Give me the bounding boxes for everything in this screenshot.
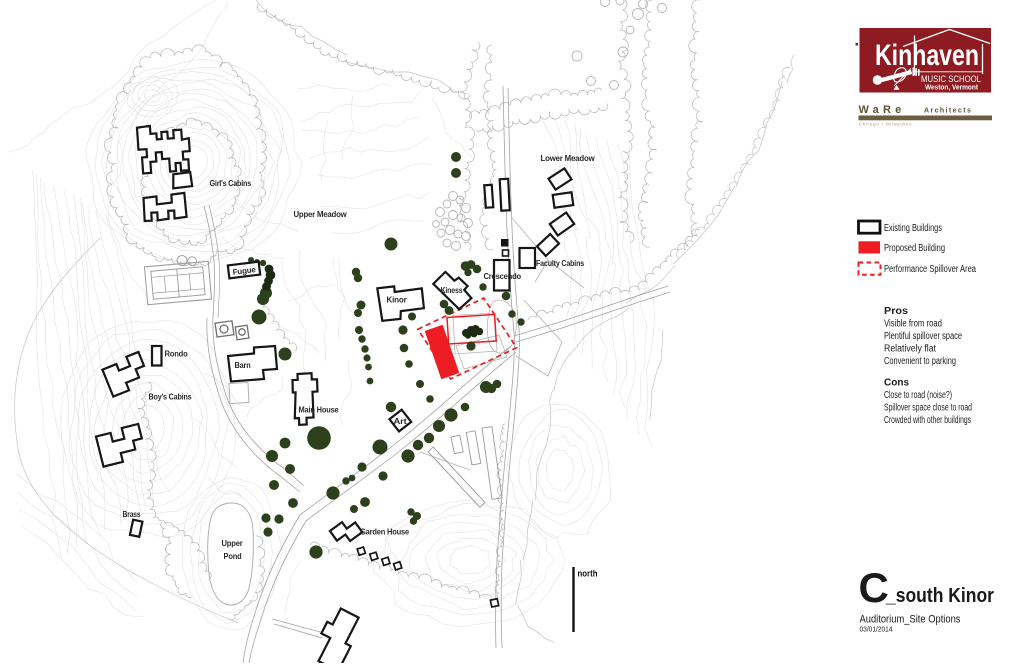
svg-text:Convenient to parking: Convenient to parking bbox=[884, 356, 956, 367]
svg-text:_south Kinor: _south Kinor bbox=[885, 584, 994, 607]
svg-text:Spillover space close to road: Spillover space close to road bbox=[884, 403, 972, 414]
svg-text:Existing Buildings: Existing Buildings bbox=[884, 223, 942, 234]
svg-text:Visible from road: Visible from road bbox=[884, 319, 942, 330]
svg-text:Relatively flat: Relatively flat bbox=[884, 344, 936, 355]
svg-text:Girl's Cabins: Girl's Cabins bbox=[210, 179, 252, 188]
svg-text:Kinhaven: Kinhaven bbox=[875, 39, 979, 72]
svg-text:Close to road (noise?): Close to road (noise?) bbox=[884, 390, 952, 401]
svg-text:Garden House: Garden House bbox=[360, 528, 410, 537]
svg-text:03/01/2014: 03/01/2014 bbox=[860, 625, 893, 634]
svg-text:Crowded with other buildings: Crowded with other buildings bbox=[884, 415, 971, 426]
svg-text:Crescendo: Crescendo bbox=[484, 272, 522, 281]
svg-text:Chicago + Milwaukee: Chicago + Milwaukee bbox=[859, 122, 912, 127]
svg-text:C: C bbox=[859, 564, 889, 611]
svg-text:Faculty Cabins: Faculty Cabins bbox=[536, 259, 585, 268]
svg-text:Barn: Barn bbox=[235, 361, 251, 370]
svg-text:WaRe: WaRe bbox=[859, 104, 906, 116]
svg-text:Kinor: Kinor bbox=[387, 296, 407, 305]
svg-text:Plentiful spillover space: Plentiful spillover space bbox=[884, 331, 962, 342]
svg-text:Art: Art bbox=[394, 417, 408, 426]
svg-text:north: north bbox=[578, 569, 598, 579]
svg-text:Cons: Cons bbox=[884, 378, 909, 389]
svg-text:Pond: Pond bbox=[224, 552, 242, 561]
svg-text:Boy's Cabins: Boy's Cabins bbox=[149, 393, 193, 402]
svg-text:Upper: Upper bbox=[222, 539, 243, 548]
svg-text:Proposed Building: Proposed Building bbox=[884, 243, 945, 254]
svg-text:Brass: Brass bbox=[123, 510, 142, 519]
svg-text:MUSIC SCHOOL: MUSIC SCHOOL bbox=[921, 74, 981, 85]
svg-text:Rondo: Rondo bbox=[165, 350, 188, 359]
svg-text:Performance Spillover Area: Performance Spillover Area bbox=[884, 264, 976, 275]
svg-text:Architects: Architects bbox=[924, 108, 972, 115]
svg-text:Weston, Vermont: Weston, Vermont bbox=[925, 85, 979, 92]
svg-text:Pros: Pros bbox=[884, 306, 908, 317]
svg-text:Main House: Main House bbox=[299, 406, 340, 415]
svg-text:Lower Meadow: Lower Meadow bbox=[541, 154, 596, 163]
svg-text:Upper Meadow: Upper Meadow bbox=[294, 210, 348, 219]
svg-text:Kiness: Kiness bbox=[441, 286, 464, 295]
